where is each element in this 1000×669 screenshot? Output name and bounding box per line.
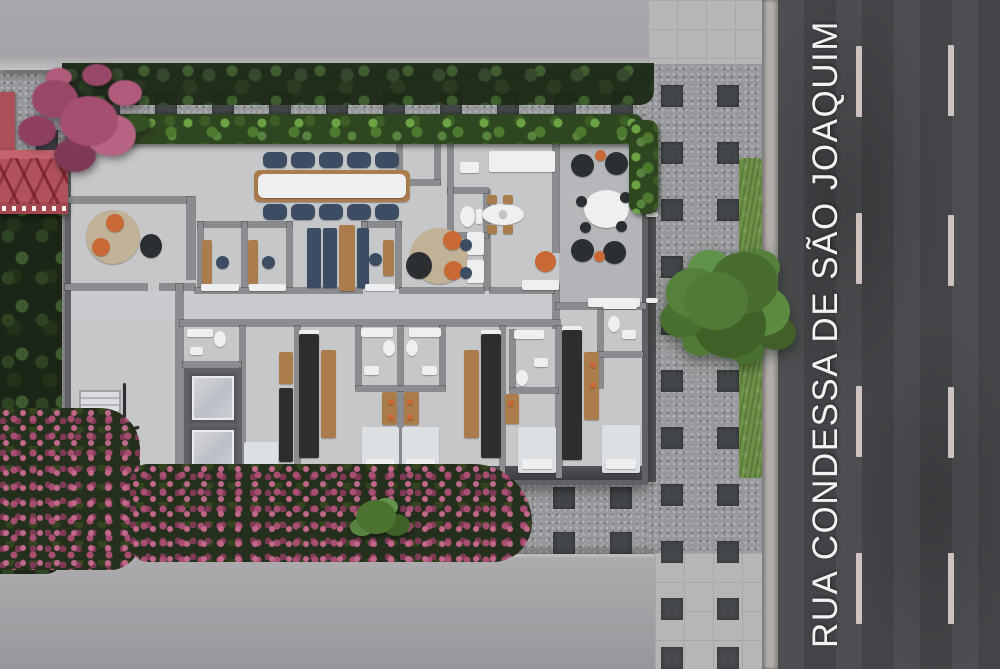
sidewalk-paver [717,541,739,563]
elevator-cab [189,373,237,423]
sidewalk-paver [661,256,683,278]
shower-bench [409,328,441,337]
terrace-lounge-chair [571,239,594,262]
conference-chair [291,152,315,168]
dining-chair [487,195,497,204]
bottomband-paver [553,532,575,554]
desk-lamp [388,414,394,420]
banquette-sofa [307,228,321,288]
shower-bench [603,300,637,309]
sidewalk-paver [661,199,683,221]
toilet [608,316,620,332]
kitchenette [481,334,501,458]
conference-chair [319,152,343,168]
office-chair [460,239,472,251]
lane-marking [856,553,862,624]
sidewalk-slabs-top [648,0,762,64]
footbridge-segment [0,92,15,152]
banquette-sofa [323,228,337,288]
terrace-lounge-chair [605,152,628,175]
lane-marking [856,213,862,284]
wall [448,188,488,193]
wall [448,134,453,238]
terrace-chair [576,196,587,207]
sidewalk-paver [661,370,683,392]
sidewalk-paver [661,647,683,669]
lane-marking [856,46,862,117]
wall [242,222,247,288]
kitchenette [279,388,293,462]
conference-tabletop [258,174,406,198]
door-threshold [249,284,286,291]
corridor [71,290,556,322]
office-chair [216,256,229,269]
red-footbridge [0,150,68,214]
toilet-tank [476,209,482,224]
hedge-right [629,120,658,214]
orange-armchair [92,238,110,256]
kitchenette-shelf [464,350,479,438]
door-threshold [365,284,395,291]
booth-desk [202,240,212,284]
sidewalk-paver [717,370,739,392]
bed-pillow [606,459,636,469]
bath-sink [622,330,636,339]
street-tree [684,272,748,330]
kitchen-counter [489,151,555,172]
lane-marking [856,386,862,457]
roof-vent [646,298,658,303]
wall [400,288,484,293]
dining-chair [503,195,513,204]
orange-armchair [106,214,124,232]
wall [510,330,515,390]
dining-chair [487,225,497,234]
flower-bed-bottom-left [0,408,140,570]
terrace-chair [616,221,627,232]
bath-sink [364,366,379,375]
banquette-sofa [357,228,369,288]
conference-chair [347,204,371,220]
kitchenette [299,334,319,458]
conference-chair [347,152,371,168]
lane-marking [948,215,954,286]
bath-sink [422,366,437,375]
sidewalk-paver [661,598,683,620]
lane-marking [948,387,954,458]
conference-chair [375,204,399,220]
street-name-label: RUA CONDESSA DE SÃO JOAQUIM [806,20,846,648]
wall [65,197,193,203]
neighbor-roof-top [0,0,648,70]
toilet [214,331,226,347]
flower-bed-bottom-center [130,464,532,562]
sidewalk-paver [717,199,739,221]
sidewalk-paver [717,647,739,669]
shower-bench [514,330,544,339]
conference-chair [291,204,315,220]
booth-desk [383,240,394,276]
kitchenette-shelf [279,352,293,384]
sidewalk-paver [661,85,683,107]
sidewalk-paver [717,142,739,164]
bed-pillow [522,459,552,469]
unit-desk [505,394,519,424]
terrace-lounge-chair [603,241,626,264]
wall [598,352,643,357]
office-chair [262,256,275,269]
sidewalk-paver [717,598,739,620]
table-vase [499,210,507,218]
wall [65,284,147,290]
unit-desk [382,392,397,425]
sidewalk-paver [661,484,683,506]
sidewalk-paver [717,427,739,449]
hedge-top [70,114,643,144]
sidewalk-paver [661,541,683,563]
door-threshold [201,284,239,291]
booth-desk [248,240,258,284]
desk-lamp [407,399,413,405]
desk-lamp [407,414,413,420]
grass-verge [739,158,762,478]
floor-lamp [140,234,162,258]
shower-bench [361,328,393,337]
dining-chair [503,225,513,234]
kitchenette [562,330,582,460]
terrace-lounge-chair [571,154,594,177]
conference-chair [263,204,287,220]
fern-bed-top [62,63,654,105]
pink-flowering-tree [60,96,118,146]
toilet [383,340,395,356]
conference-chair [263,152,287,168]
conference-chair [375,152,399,168]
wall [356,386,445,391]
desk-lamp [388,399,394,405]
toilet [460,206,475,227]
neighbor-roof-bottom [0,554,656,669]
bottomband-paver [610,532,632,554]
wall [510,388,558,393]
sidewalk-paver [717,85,739,107]
site-plan: RUA CONDESSA DE SÃO JOAQUIM [0,0,1000,669]
sidewalk-paver [717,484,739,506]
sidewalk-paver [661,313,683,335]
toilet [516,370,528,386]
wall [396,222,401,288]
office-chair [369,253,382,266]
green-bush [356,500,396,534]
sidewalk-paver [661,427,683,449]
bottomband-paver [553,487,575,509]
terrace-chair [580,222,591,233]
conference-chair [319,204,343,220]
wall [484,190,490,290]
terrace-side-table [594,251,605,262]
wall [287,222,292,288]
wall [176,284,183,478]
bench [522,280,559,290]
bath-sink [534,358,548,367]
street-curb [762,0,778,669]
wall [183,362,241,367]
desk-lamp [508,400,514,406]
kitchenette-shelf [321,350,336,438]
leftmargin-paver [36,130,58,152]
terrace-side-table [595,150,606,161]
sidewalk-paver [661,142,683,164]
banquette-table [339,225,355,291]
shower-bench [187,329,213,337]
office-chair [460,267,472,279]
orange-armchair [443,231,462,250]
desk-lamp [590,382,596,388]
lane-marking [948,45,954,116]
kitchen-appliance [460,162,479,173]
wall [187,197,195,279]
wall [435,138,440,184]
bath-sink [190,347,203,355]
lounge-sofa [406,252,432,279]
lane-marking [948,553,954,624]
orange-armchair [535,251,556,272]
desk-lamp [590,362,596,368]
bottomband-paver [610,487,632,509]
toilet [406,340,418,356]
unit-desk [404,392,419,425]
